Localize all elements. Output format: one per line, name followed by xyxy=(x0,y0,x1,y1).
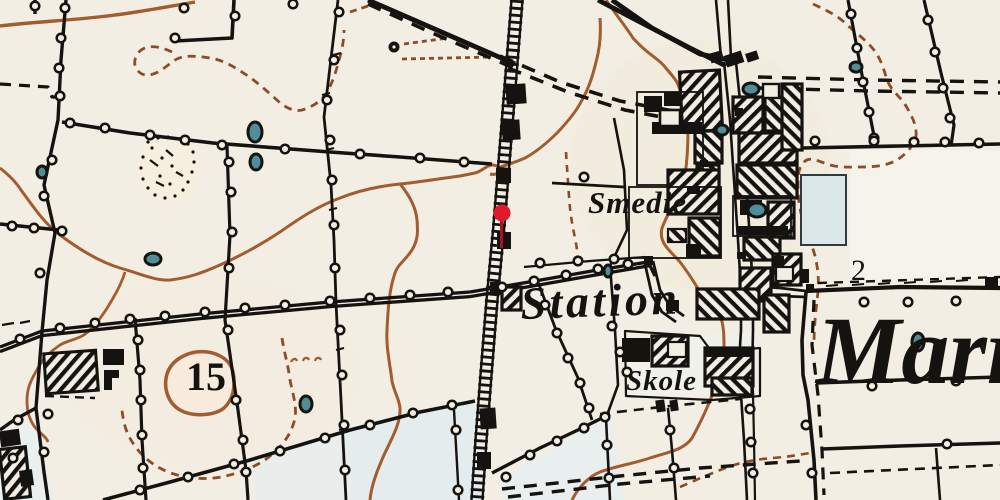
svg-text:2: 2 xyxy=(851,254,866,287)
svg-text:Station: Station xyxy=(520,272,682,329)
svg-text:Marr: Marr xyxy=(814,297,1000,404)
svg-text:15: 15 xyxy=(186,354,226,399)
svg-text:Skole: Skole xyxy=(626,365,697,397)
svg-text:Smedie: Smedie xyxy=(588,185,687,220)
